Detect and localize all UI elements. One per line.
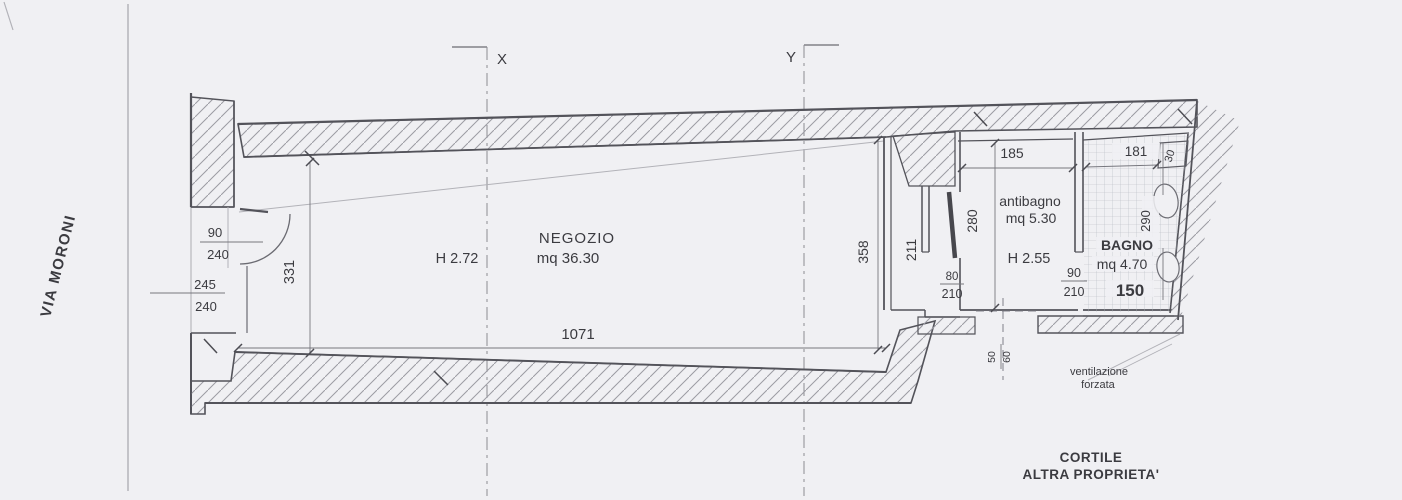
dim-358: 358 <box>855 240 871 264</box>
dim-150: 150 <box>1116 281 1144 300</box>
antibagno-door-leaf <box>949 192 955 258</box>
street-label: VIA MORONI <box>37 213 79 319</box>
dim-290: 290 <box>1138 210 1153 232</box>
antibagno-door-width: 80 <box>946 271 959 283</box>
dim-1071: 1071 <box>561 326 594 343</box>
antibagno-bagno-wall <box>1075 132 1083 252</box>
dim-331: 331 <box>282 260 298 284</box>
entrance-door <box>191 207 290 333</box>
bagno-name: BAGNO <box>1101 237 1153 253</box>
floor-plan-drawing: VIA MORONI X Y 90 240 245 240 331 H 2.72… <box>0 0 1402 500</box>
junction-wall <box>893 132 955 186</box>
antibagno-area: mq 5.30 <box>1006 210 1057 226</box>
entrance-door-width: 90 <box>208 225 222 240</box>
vent-label-1: ventilazione <box>1070 366 1128 378</box>
dim-181: 181 <box>1125 144 1148 159</box>
section-x-label: X <box>497 51 507 68</box>
antibagno-door-height: 210 <box>942 287 963 301</box>
vent-dim-w: 50 <box>986 351 998 363</box>
vent-dim-h: 60 <box>1001 351 1013 363</box>
entrance-opening-height: 240 <box>195 299 217 314</box>
antibagno-name: antibagno <box>999 193 1061 209</box>
dim-185: 185 <box>1000 145 1024 161</box>
entrance-door-swing-arc <box>240 214 290 264</box>
vent-label-2: forzata <box>1081 379 1116 391</box>
section-y-label: Y <box>786 49 796 66</box>
courtyard-label-2: ALTRA PROPRIETA' <box>1023 467 1160 482</box>
entrance-door-height: 240 <box>207 247 229 262</box>
floor-plan-scan: VIA MORONI X Y 90 240 245 240 331 H 2.72… <box>0 0 1402 500</box>
negozio-area: mq 36.30 <box>537 250 600 267</box>
left-wall <box>191 97 234 207</box>
bagno-door-height: 210 <box>1064 285 1085 299</box>
top-wall <box>238 100 1197 157</box>
bottom-wall-under-bagno <box>1038 316 1183 333</box>
negozio-name: NEGOZIO <box>539 230 615 247</box>
bottom-wall-right-piece <box>918 317 975 334</box>
entrance-opening-width: 245 <box>194 277 216 292</box>
courtyard-label-1: CORTILE <box>1060 450 1123 465</box>
dim-211: 211 <box>903 239 919 262</box>
section-line-x <box>452 47 487 496</box>
bagno-area: mq 4.70 <box>1097 256 1148 272</box>
bagno-door-width: 90 <box>1067 266 1081 280</box>
dim-280: 280 <box>964 209 980 233</box>
negozio-height: H 2.72 <box>436 251 479 267</box>
antibagno-height: H 2.55 <box>1008 251 1051 267</box>
scan-artifacts <box>4 2 13 30</box>
